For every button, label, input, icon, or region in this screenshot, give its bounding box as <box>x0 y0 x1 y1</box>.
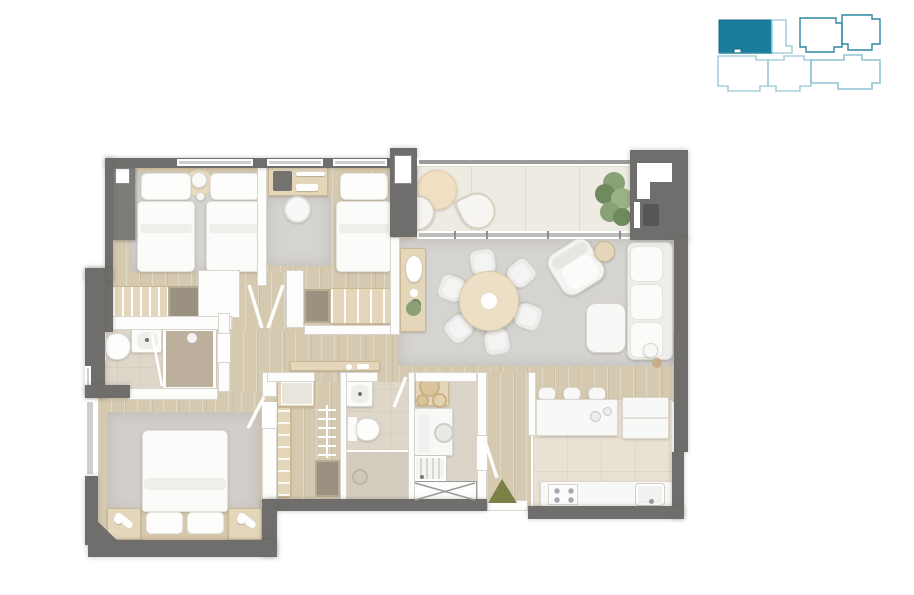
closet-hangers <box>318 408 336 456</box>
bed-duvet <box>142 430 228 512</box>
key-plan-unit <box>768 56 811 91</box>
single-bed <box>336 164 390 270</box>
sofa-cushion <box>630 246 663 282</box>
wall-living-west <box>390 237 400 335</box>
sink-drain <box>358 392 362 396</box>
northeast-niche-1 <box>637 163 672 182</box>
side-table <box>594 241 615 262</box>
key-plan-unit <box>718 56 768 91</box>
wall-corridor-east-lower <box>262 428 277 500</box>
nightstand-lamp <box>237 515 246 524</box>
wall-closet-east <box>340 372 347 500</box>
laundry-basket <box>416 394 429 407</box>
twin-bed-1 <box>137 164 193 270</box>
bed-pillow <box>141 173 191 200</box>
bed-pillow <box>187 512 224 534</box>
living-sideboard <box>400 248 426 332</box>
bedroom2-closet-box <box>304 289 330 323</box>
master-toilet-bowl <box>105 333 131 360</box>
wall-kitchen-stub <box>528 372 536 436</box>
wall-laundry-east-upper <box>477 372 487 436</box>
key-plan-unit <box>811 55 880 89</box>
island-sink-bowl <box>590 411 601 422</box>
wall-recess-east <box>286 270 304 328</box>
sideboard-plant <box>406 301 421 316</box>
key-plan-unit <box>772 20 792 53</box>
wall-bath2-east <box>408 372 415 500</box>
wall-laundry-north <box>415 372 477 382</box>
closet-side-unit <box>277 407 291 497</box>
dining-table-centerpiece <box>481 293 497 309</box>
desk-keyboard <box>296 184 318 191</box>
wall-masterbath-east-upper <box>218 313 230 334</box>
balcony-plant <box>595 170 635 230</box>
bedroom2-window-1 <box>267 159 323 166</box>
sink-drain <box>145 338 149 342</box>
nightstand-right <box>228 508 262 540</box>
console-decor <box>346 364 352 370</box>
wall-masterbath-east-lower <box>218 362 230 392</box>
wall-bedroom2-south <box>304 325 398 335</box>
wall-east <box>674 237 688 452</box>
wall-south-kitchen <box>528 506 684 519</box>
desk-shelf <box>296 172 325 176</box>
bed-pillow <box>210 173 260 200</box>
console-decor <box>357 364 369 369</box>
wall-bedroom1-south-block <box>198 270 240 318</box>
bedroom2-desk-chair <box>284 196 311 223</box>
floor-plan-canvas <box>0 0 914 595</box>
laundry-basket <box>432 393 447 408</box>
master-shower-head <box>186 332 198 344</box>
wall-closet-north <box>267 372 315 382</box>
ottoman <box>586 303 626 353</box>
desk-organizer <box>273 171 292 191</box>
bed-fold <box>144 478 226 490</box>
utility-sink-drain <box>420 475 424 479</box>
kitchen-island <box>536 399 618 436</box>
utility-sink <box>414 456 446 481</box>
entry-floor <box>487 372 531 506</box>
bedroom2-closet-shelves <box>330 288 398 324</box>
bedroom2-window-2 <box>333 159 387 166</box>
bedroom1-small-decor <box>196 192 205 201</box>
hall-console <box>290 361 380 371</box>
bedroom1-wardrobe-niche <box>115 168 130 184</box>
island-sink-bowl <box>603 407 612 416</box>
bathroom2-sink <box>346 378 373 407</box>
wall-west-upper <box>105 158 113 332</box>
balcony-column-niche <box>394 155 412 184</box>
bathroom2-toilet-bowl <box>356 418 380 441</box>
master-bed <box>142 430 228 544</box>
northeast-niche-2 <box>637 182 650 199</box>
washing-machine <box>414 408 453 456</box>
bed-pillow <box>340 173 388 200</box>
bed-pillow <box>146 512 183 534</box>
kitchen-sink <box>636 484 664 505</box>
shower-drain <box>352 469 368 485</box>
fridge-door-line <box>623 417 668 419</box>
wall-bedroom1-south <box>95 316 232 330</box>
cooktop <box>548 484 578 505</box>
sideboard-tray <box>406 256 422 282</box>
closet-drawer-box <box>315 460 340 497</box>
bedroom1-closet <box>112 286 169 318</box>
sink-drain <box>649 499 654 504</box>
wall-south-mid <box>265 499 487 511</box>
washer-door <box>434 423 454 443</box>
closet-shelf-interior <box>281 382 313 405</box>
bed-duvet <box>336 201 392 272</box>
balcony-railing <box>417 158 633 166</box>
ac-niche <box>643 204 659 226</box>
floor-lamp-shade <box>643 343 658 358</box>
washer-panel <box>418 414 430 452</box>
sideboard-bowl <box>410 289 418 297</box>
wall-laundry-east-lower <box>477 470 487 500</box>
floor-lamp-base <box>652 358 662 368</box>
bed-duvet <box>137 201 195 272</box>
nightstand-lamp <box>114 515 123 524</box>
closet-shelf-unit <box>277 378 315 407</box>
bedroom1-stool <box>191 172 207 188</box>
wall-west-lower <box>85 476 98 545</box>
nightstand-left <box>107 508 141 540</box>
wall-south-master <box>88 540 277 557</box>
bedroom1-dresser <box>168 286 201 318</box>
refrigerator <box>622 397 669 439</box>
master-sink <box>131 326 162 353</box>
key-plan <box>716 10 892 98</box>
key-plan-unit <box>842 15 880 50</box>
key-plan-unit <box>800 18 842 52</box>
bedroom1-window <box>177 159 253 166</box>
key-plan-highlighted-unit <box>719 20 772 53</box>
twin-bed-2 <box>206 164 262 270</box>
bedroom2-desk <box>268 167 328 196</box>
wall-masterbath-south-stub <box>85 385 130 398</box>
sofa-cushion <box>630 284 663 320</box>
bed-duvet <box>206 201 264 272</box>
entry-threshold <box>487 500 528 511</box>
master-bedroom-window <box>85 400 95 476</box>
ac-niche-slit <box>634 202 640 228</box>
wall-bedroom-divider <box>257 160 267 286</box>
wall-masterbath-south <box>128 388 218 400</box>
